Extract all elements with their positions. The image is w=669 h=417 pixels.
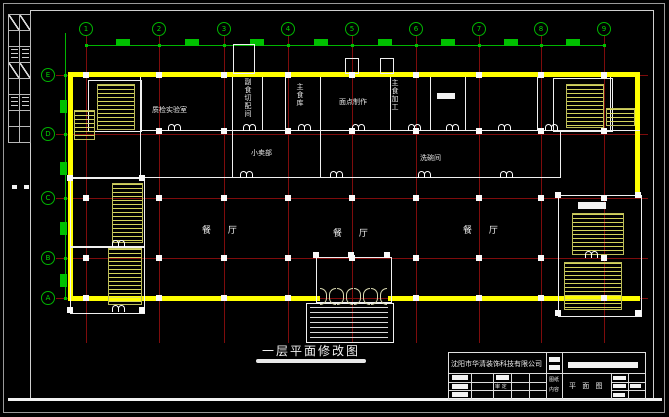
column-marker [555,310,561,316]
stair-treads [108,248,142,305]
company-name: 沈阳市华清装饰科技有限公司 [451,359,545,369]
column-marker [476,128,482,134]
grid-bubble-row-B: B [41,251,55,265]
grid-bubble-col-6: 6 [409,22,423,36]
column-marker [476,295,482,301]
grid-bubble-col-7: 7 [472,22,486,36]
column-marker [476,72,482,78]
room-label-side-dish-cutting: 副食切配间 [244,78,252,118]
door-symbol [500,171,514,178]
door-symbol [352,124,366,131]
column-marker [635,192,641,198]
door-symbol [585,251,599,258]
grid-bubble-col-3: 3 [217,22,231,36]
room-label-staple-food-processing: 主食加工 [391,79,399,111]
column-marker [83,295,89,301]
door-symbol [112,240,126,247]
dimension-tick [287,44,290,47]
column-marker [601,255,607,261]
column-marker [156,255,162,261]
label-redaction-block [578,202,606,209]
column-marker [538,72,544,78]
dimension-tick [158,44,161,47]
dimension-tick [64,297,67,300]
partition-wall [537,77,538,131]
column-marker [156,295,162,301]
column-marker [83,72,89,78]
stair-treads [606,108,635,126]
drawing-name: 平 面 图 [569,381,604,391]
column-marker [285,295,291,301]
dimension-text-block [185,39,199,46]
column-marker [313,252,319,258]
room-label-dining-hall-2: 餐 厅 [333,226,375,239]
wall-highlight [635,77,640,195]
grid-bubble-row-A: A [41,291,55,305]
column-marker [601,128,607,134]
entrance-door-arcs [337,288,353,305]
door-symbol [298,124,312,131]
column-marker [476,195,482,201]
dimension-text-block [566,39,580,46]
wall-shaft [380,58,394,74]
dimension-tick [478,44,481,47]
door-symbol [330,171,344,178]
project-name-redacted [568,362,638,368]
stair-treads [564,262,622,310]
door-symbol [446,124,460,131]
column-marker [413,195,419,201]
drawing-title-underline [256,359,366,363]
grid-bubble-col-9: 9 [597,22,611,36]
partition-wall [262,77,263,131]
column-marker [285,195,291,201]
dimension-tick [603,44,606,47]
door-symbol [112,305,126,312]
dimension-text-block [378,39,392,46]
room-label-qc: 质检实验室 [152,106,187,114]
column-marker [413,72,419,78]
entrance-door-arcs [354,288,370,305]
dimension-text-block [60,100,67,113]
dimension-tick [64,74,67,77]
dimension-text-block [504,39,518,46]
column-marker [221,195,227,201]
dimension-tick [223,44,226,47]
grid-bubble-col-1: 1 [79,22,93,36]
dimension-text-block [314,39,328,46]
column-marker [349,72,355,78]
column-marker [538,128,544,134]
column-marker [139,175,145,181]
column-marker [221,295,227,301]
entrance-steps [310,307,388,338]
room-label-staple-food-store: 主食库 [296,83,304,107]
cad-drawing-sheet: 123456789EDCBA 质检实验室 副食切配间 主食库 面点制作 主食加工… [0,0,669,417]
stair-treads [112,183,143,243]
drawing-title: 一层平面修改图 [262,342,360,359]
dimension-tick [85,44,88,47]
column-marker [538,255,544,261]
door-symbol [240,171,254,178]
dimension-tick [64,133,67,136]
column-marker [285,255,291,261]
column-marker [601,72,607,78]
partition-wall [430,77,431,131]
room-label-small-shop: 小卖部 [251,149,272,157]
stair-treads [97,84,135,130]
dimension-tick [351,44,354,47]
column-marker [67,307,73,313]
stair-treads [74,110,95,140]
top-protrusion [233,44,255,74]
grid-bubble-col-8: 8 [534,22,548,36]
content-label-top: 图纸 [549,376,559,383]
column-marker [83,255,89,261]
grid-bubble-row-C: C [41,191,55,205]
column-marker [156,195,162,201]
dimension-tick [64,257,67,260]
door-symbol [168,124,182,131]
column-marker [156,128,162,134]
column-marker [601,195,607,201]
column-marker [83,195,89,201]
room-label-dining-hall-1: 餐 厅 [202,223,244,236]
dimension-text-block [60,162,67,175]
column-marker [349,195,355,201]
column-marker [413,295,419,301]
door-symbol [498,124,512,131]
grid-bubble-col-2: 2 [152,22,166,36]
room-label-pastry-making: 面点制作 [339,98,367,106]
column-marker [538,195,544,201]
grid-bubble-row-D: D [41,127,55,141]
stair-treads [572,213,624,255]
content-label-bottom: 内容 [549,386,559,393]
partition-wall [285,77,286,131]
grid-bubble-row-E: E [41,68,55,82]
partition-wall [560,131,561,178]
dimension-text-block [60,222,67,235]
grid-bubble-col-4: 4 [281,22,295,36]
column-marker [221,72,227,78]
column-marker [538,295,544,301]
label-redaction-block [437,93,455,99]
dimension-tick [64,197,67,200]
dimension-text-block [116,39,130,46]
entrance-door-arcs [371,288,387,305]
door-symbol [418,171,432,178]
column-marker [67,175,73,181]
column-marker [285,72,291,78]
column-marker [413,255,419,261]
column-marker [221,255,227,261]
dimension-line-top [86,45,605,46]
partition-wall [320,77,321,178]
grid-bubble-col-5: 5 [345,22,359,36]
title-block: 沈阳市华清装饰科技有限公司 审 定 图纸 内容 平 面 图 [448,352,646,400]
column-marker [635,310,641,316]
dimension-text-block [60,274,67,287]
review-label: 审 定 [495,383,507,390]
column-marker [384,252,390,258]
column-marker [476,255,482,261]
dimension-text-block [441,39,455,46]
room-label-dish-washing: 洗碗间 [420,154,441,162]
column-marker [285,128,291,134]
column-marker [139,307,145,313]
partition-wall [465,77,466,131]
door-symbol [408,124,422,131]
entrance-door-arcs [320,288,336,305]
column-marker [601,295,607,301]
door-symbol [243,124,257,131]
partition-wall [232,131,233,178]
column-marker [221,128,227,134]
dimension-tick [415,44,418,47]
door-symbol [545,124,559,131]
dimension-tick [540,44,543,47]
room-label-dining-hall-3: 餐 厅 [463,223,505,236]
stair-treads [566,84,604,128]
column-marker [348,252,354,258]
column-marker [156,72,162,78]
column-marker [555,192,561,198]
